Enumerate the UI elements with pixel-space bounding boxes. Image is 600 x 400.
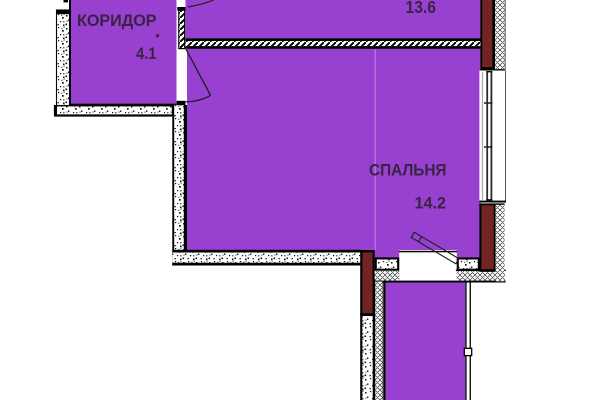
svg-text:КОРИДОР: КОРИДОР	[77, 12, 157, 30]
svg-text:14.2: 14.2	[415, 194, 447, 212]
svg-text:4.1: 4.1	[136, 45, 157, 63]
svg-text:СПАЛЬНЯ: СПАЛЬНЯ	[369, 161, 447, 179]
svg-text:13.6: 13.6	[406, 0, 437, 17]
